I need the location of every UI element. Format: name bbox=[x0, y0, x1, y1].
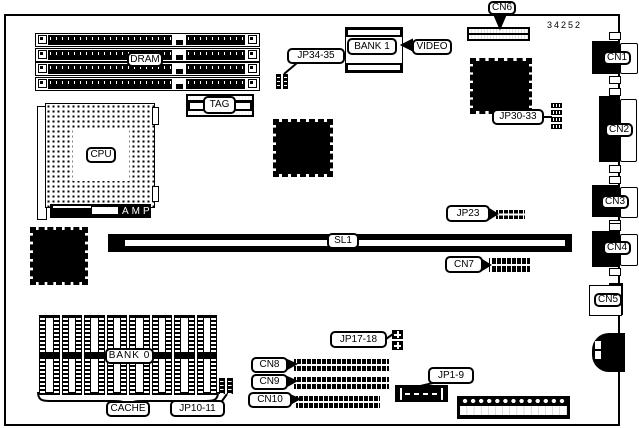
cn9-label: CN9 bbox=[251, 374, 288, 390]
cache-label: CACHE bbox=[106, 401, 150, 417]
simm-latch-icon bbox=[38, 79, 47, 88]
amp-bar-line bbox=[53, 206, 91, 208]
jp31-jumper bbox=[551, 110, 562, 115]
pin-row bbox=[469, 35, 528, 39]
qfp-chip bbox=[470, 58, 532, 114]
qfp-chip bbox=[273, 119, 333, 177]
jp17-18-label: JP17-18 bbox=[330, 331, 387, 348]
connector-tab bbox=[609, 223, 621, 231]
cn7-label: CN7 bbox=[445, 256, 483, 273]
cache-socket bbox=[198, 316, 217, 354]
cn3-label: CN3 bbox=[601, 195, 629, 209]
cn10-label: CN10 bbox=[248, 392, 292, 408]
jp11-jumper bbox=[227, 378, 233, 394]
connector-tab bbox=[609, 88, 621, 96]
cache-socket bbox=[153, 357, 172, 395]
cn5-label: CN5 bbox=[594, 293, 622, 307]
jp35-jumper bbox=[283, 74, 288, 89]
cpu-socket-tab bbox=[152, 107, 159, 125]
simm-latch-icon bbox=[248, 50, 257, 59]
cn6-header bbox=[467, 27, 530, 41]
simm-latch-icon bbox=[248, 35, 257, 44]
jp10-jumper bbox=[219, 378, 225, 394]
simm-key bbox=[176, 69, 183, 74]
cache-socket bbox=[63, 316, 82, 354]
dip-pins bbox=[348, 30, 400, 35]
dip-pins bbox=[346, 63, 402, 72]
simm-latch-icon bbox=[38, 50, 47, 59]
cn2-label: CN2 bbox=[605, 123, 633, 137]
cache-socket-column bbox=[39, 315, 60, 395]
cn6-label: CN6 bbox=[488, 1, 516, 15]
power-pins bbox=[461, 398, 566, 404]
part-number: 34252 bbox=[547, 20, 582, 30]
simm-contacts bbox=[186, 79, 245, 89]
din-slot bbox=[595, 341, 601, 349]
cpu-label: CPU bbox=[86, 147, 116, 163]
jp34-jumper bbox=[276, 74, 281, 89]
power-slots bbox=[460, 406, 567, 417]
cn7-header bbox=[489, 258, 530, 272]
motherboard-diagram: 34252 DRAM CPU AMP bbox=[0, 0, 639, 428]
amp-lever-bar: AMP bbox=[50, 204, 151, 218]
cache-socket bbox=[63, 357, 82, 395]
jp30-33-label: JP30-33 bbox=[492, 109, 544, 125]
simm-contacts bbox=[186, 50, 245, 60]
simm-key bbox=[176, 40, 183, 45]
amp-bar-notch bbox=[92, 207, 118, 214]
simm-contacts bbox=[48, 79, 172, 89]
tag-label: TAG bbox=[203, 96, 236, 114]
jp1-9-jumper-block bbox=[395, 385, 448, 402]
dip-pins bbox=[346, 28, 402, 37]
dram-slot bbox=[35, 77, 260, 91]
cn4-label: CN4 bbox=[603, 241, 631, 255]
jp18-jumper bbox=[392, 341, 403, 350]
simm-contacts bbox=[186, 35, 245, 45]
simm-latch-icon bbox=[248, 79, 257, 88]
connector-tab bbox=[609, 268, 621, 276]
simm-contacts bbox=[186, 64, 245, 74]
connector-tab bbox=[609, 32, 621, 40]
jp32-jumper bbox=[551, 117, 562, 122]
video-label: VIDEO bbox=[412, 39, 452, 55]
connector-tab bbox=[609, 176, 621, 184]
jp34-35-label: JP34-35 bbox=[287, 48, 345, 64]
connector-tab bbox=[609, 76, 621, 84]
cpu-socket-tab bbox=[152, 186, 159, 202]
dram-label: DRAM bbox=[127, 52, 163, 67]
simm-latch-icon bbox=[248, 64, 257, 73]
cache-socket bbox=[40, 316, 59, 354]
jp23-label: JP23 bbox=[446, 205, 490, 222]
cache-socket bbox=[85, 316, 104, 354]
keyboard-din-connector bbox=[592, 333, 625, 372]
cache-socket-column bbox=[62, 315, 83, 395]
jp1-9-label: JP1-9 bbox=[428, 367, 474, 384]
bank0-label: BANK 0 bbox=[105, 348, 154, 364]
cn8-label: CN8 bbox=[251, 357, 288, 373]
power-connector bbox=[457, 396, 570, 419]
jp30-jumper bbox=[551, 103, 562, 108]
cache-socket-column bbox=[197, 315, 218, 395]
jp10-11-label: JP10-11 bbox=[170, 400, 225, 417]
cache-socket-column bbox=[174, 315, 195, 395]
connector-tab bbox=[609, 165, 621, 173]
cache-socket bbox=[175, 357, 194, 395]
cache-socket bbox=[40, 357, 59, 395]
cn8-header bbox=[294, 359, 389, 371]
jp33-jumper bbox=[551, 124, 562, 129]
simm-latch-icon bbox=[38, 64, 47, 73]
din-slot bbox=[595, 351, 601, 359]
jp17-jumper bbox=[392, 330, 403, 339]
amp-label: AMP bbox=[122, 206, 153, 217]
simm-latch-icon bbox=[38, 35, 47, 44]
cache-socket-column bbox=[84, 315, 105, 395]
cache-socket bbox=[153, 316, 172, 354]
bank1-label: BANK 1 bbox=[347, 38, 397, 55]
cache-socket bbox=[85, 357, 104, 395]
pin-row bbox=[469, 29, 528, 33]
cpu-socket: CPU bbox=[45, 103, 155, 208]
cn1-label: CN1 bbox=[603, 51, 631, 65]
dip-pins bbox=[348, 65, 400, 70]
qfp-chip bbox=[30, 227, 88, 285]
simm-key bbox=[176, 55, 183, 60]
cn9-header bbox=[294, 377, 389, 389]
sl1-label: SL1 bbox=[327, 233, 359, 249]
cn10-header bbox=[296, 396, 380, 408]
cache-socket bbox=[175, 316, 194, 354]
cache-socket bbox=[198, 357, 217, 395]
jp23-header bbox=[496, 210, 525, 219]
cpu-socket-center: CPU bbox=[73, 128, 129, 181]
dram-slot bbox=[35, 33, 260, 47]
simm-key bbox=[176, 84, 183, 89]
cache-socket-column bbox=[152, 315, 173, 395]
simm-contacts bbox=[48, 35, 172, 45]
